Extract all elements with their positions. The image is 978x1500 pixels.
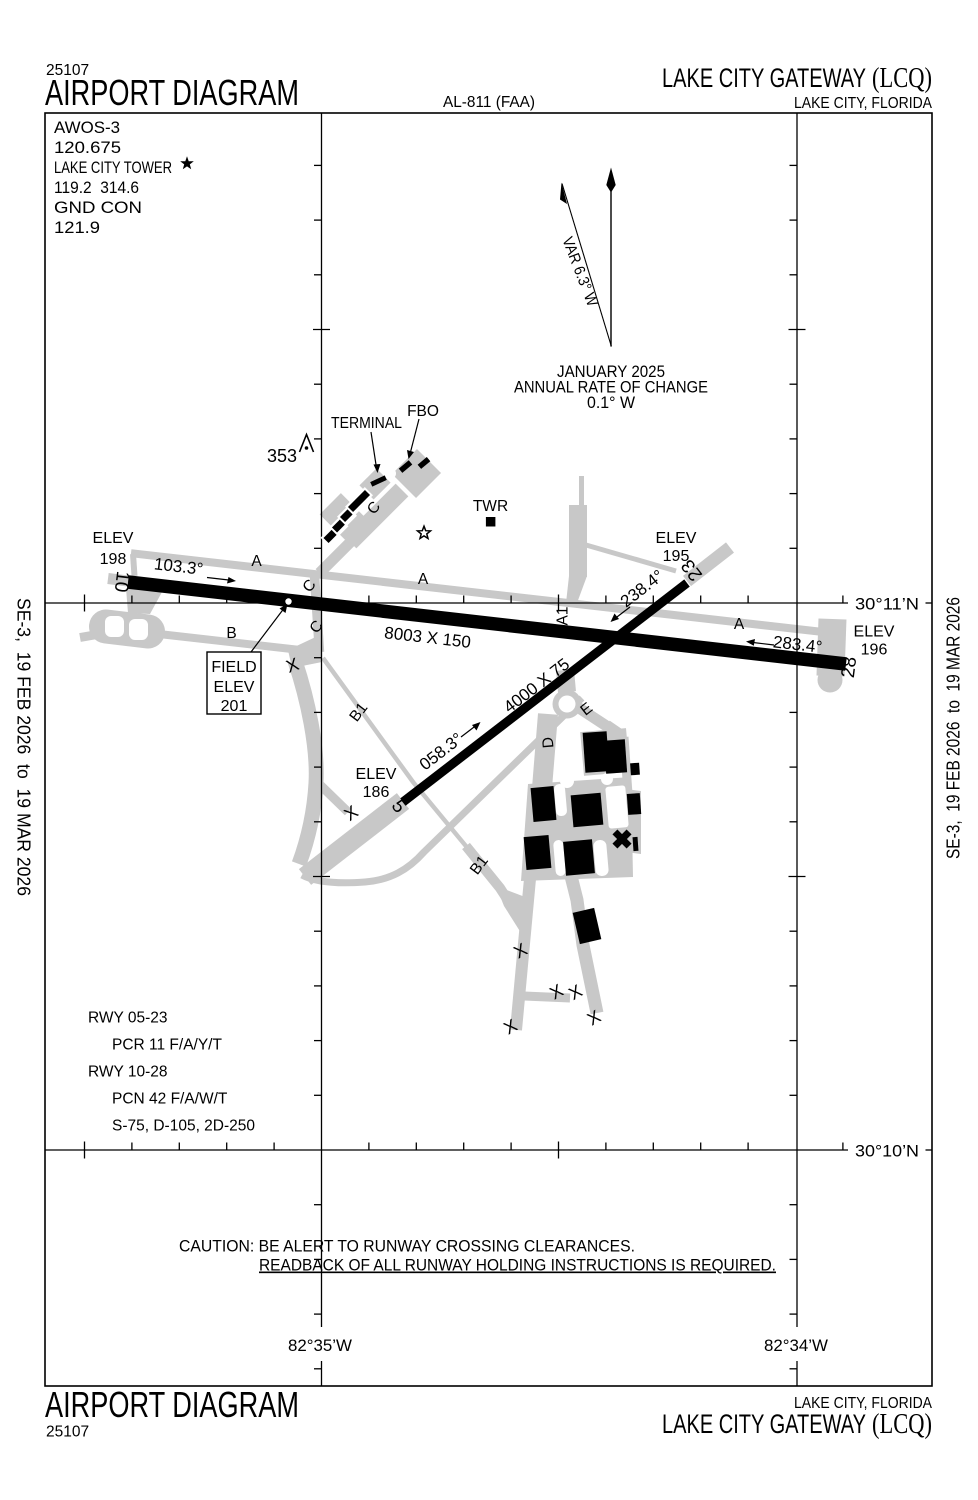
svg-text:ELEV: ELEV: [356, 766, 397, 783]
svg-text:ELEV: ELEV: [93, 530, 134, 547]
svg-text:PCR 11 F/A/Y/T: PCR 11 F/A/Y/T: [112, 1037, 222, 1054]
svg-text:30°10’N: 30°10’N: [855, 1142, 919, 1161]
svg-text:120.675: 120.675: [54, 139, 121, 157]
svg-text:RWY 10-28: RWY 10-28: [88, 1064, 168, 1081]
svg-text:ELEV: ELEV: [854, 624, 895, 641]
svg-text:186: 186: [363, 784, 390, 801]
svg-text:TWR: TWR: [473, 498, 508, 515]
svg-text:AIRPORT DIAGRAM: AIRPORT DIAGRAM: [45, 1384, 299, 1425]
svg-text:30°11’N: 30°11’N: [855, 595, 919, 614]
svg-text:LAKE CITY, FLORIDA: LAKE CITY, FLORIDA: [794, 95, 932, 112]
svg-text:D: D: [540, 736, 558, 749]
svg-text:S-75, D-105, 2D-250: S-75, D-105, 2D-250: [112, 1118, 255, 1135]
svg-text:(LCQ): (LCQ): [872, 1409, 932, 1440]
svg-text:28: 28: [838, 656, 861, 680]
svg-text:SE-3, 19 FEB 2026 to 19 MAR: SE-3, 19 FEB 2026 to 19 MAR 2026: [14, 598, 34, 896]
svg-text:FIELD: FIELD: [211, 659, 256, 676]
svg-text:A: A: [418, 571, 429, 588]
svg-text:SE-3, 19 FEB 2026 to 19 MAR: SE-3, 19 FEB 2026 to 19 MAR 2026: [944, 597, 964, 859]
svg-text:LAKE CITY TOWER: LAKE CITY TOWER: [54, 159, 172, 177]
svg-text:CAUTION: BE ALERT TO RUNWAY CR: CAUTION: BE ALERT TO RUNWAY CROSSING CLE…: [179, 1238, 635, 1256]
svg-text:82°35’W: 82°35’W: [288, 1336, 352, 1355]
svg-text:353: 353: [267, 446, 297, 466]
svg-text:(LCQ): (LCQ): [872, 63, 932, 94]
svg-text:0.1° W: 0.1° W: [587, 394, 635, 412]
svg-text:PCN 42 F/A/W/T: PCN 42 F/A/W/T: [112, 1091, 228, 1108]
svg-text:LAKE CITY GATEWAY: LAKE CITY GATEWAY: [662, 63, 866, 93]
svg-text:FBO: FBO: [407, 403, 439, 420]
svg-text:READBACK OF ALL RUNWAY HOLDING: READBACK OF ALL RUNWAY HOLDING INSTRUCTI…: [259, 1257, 776, 1275]
svg-text:AL-811 (FAA): AL-811 (FAA): [443, 94, 535, 111]
svg-text:TERMINAL: TERMINAL: [331, 415, 402, 432]
svg-text:ELEV: ELEV: [656, 530, 697, 547]
svg-text:25107: 25107: [46, 1424, 89, 1441]
svg-text:201: 201: [221, 698, 248, 715]
svg-text:198: 198: [100, 551, 127, 568]
svg-text:119.2 314.6: 119.2 314.6: [54, 179, 139, 197]
svg-text:AIRPORT DIAGRAM: AIRPORT DIAGRAM: [45, 72, 299, 113]
svg-text:A: A: [251, 553, 262, 570]
svg-text:LAKE CITY GATEWAY: LAKE CITY GATEWAY: [662, 1409, 866, 1439]
svg-text:A1: A1: [555, 607, 572, 626]
svg-text:RWY 05-23: RWY 05-23: [88, 1010, 168, 1027]
svg-text:82°34’W: 82°34’W: [764, 1336, 828, 1355]
svg-text:196: 196: [861, 642, 888, 659]
svg-text:AWOS-3: AWOS-3: [54, 119, 120, 137]
svg-text:ELEV: ELEV: [214, 679, 255, 696]
svg-text:A: A: [734, 616, 745, 633]
svg-text:121.9: 121.9: [54, 219, 100, 237]
svg-text:GND CON: GND CON: [54, 199, 142, 217]
svg-text:B: B: [226, 625, 236, 642]
svg-text:10: 10: [110, 570, 133, 594]
